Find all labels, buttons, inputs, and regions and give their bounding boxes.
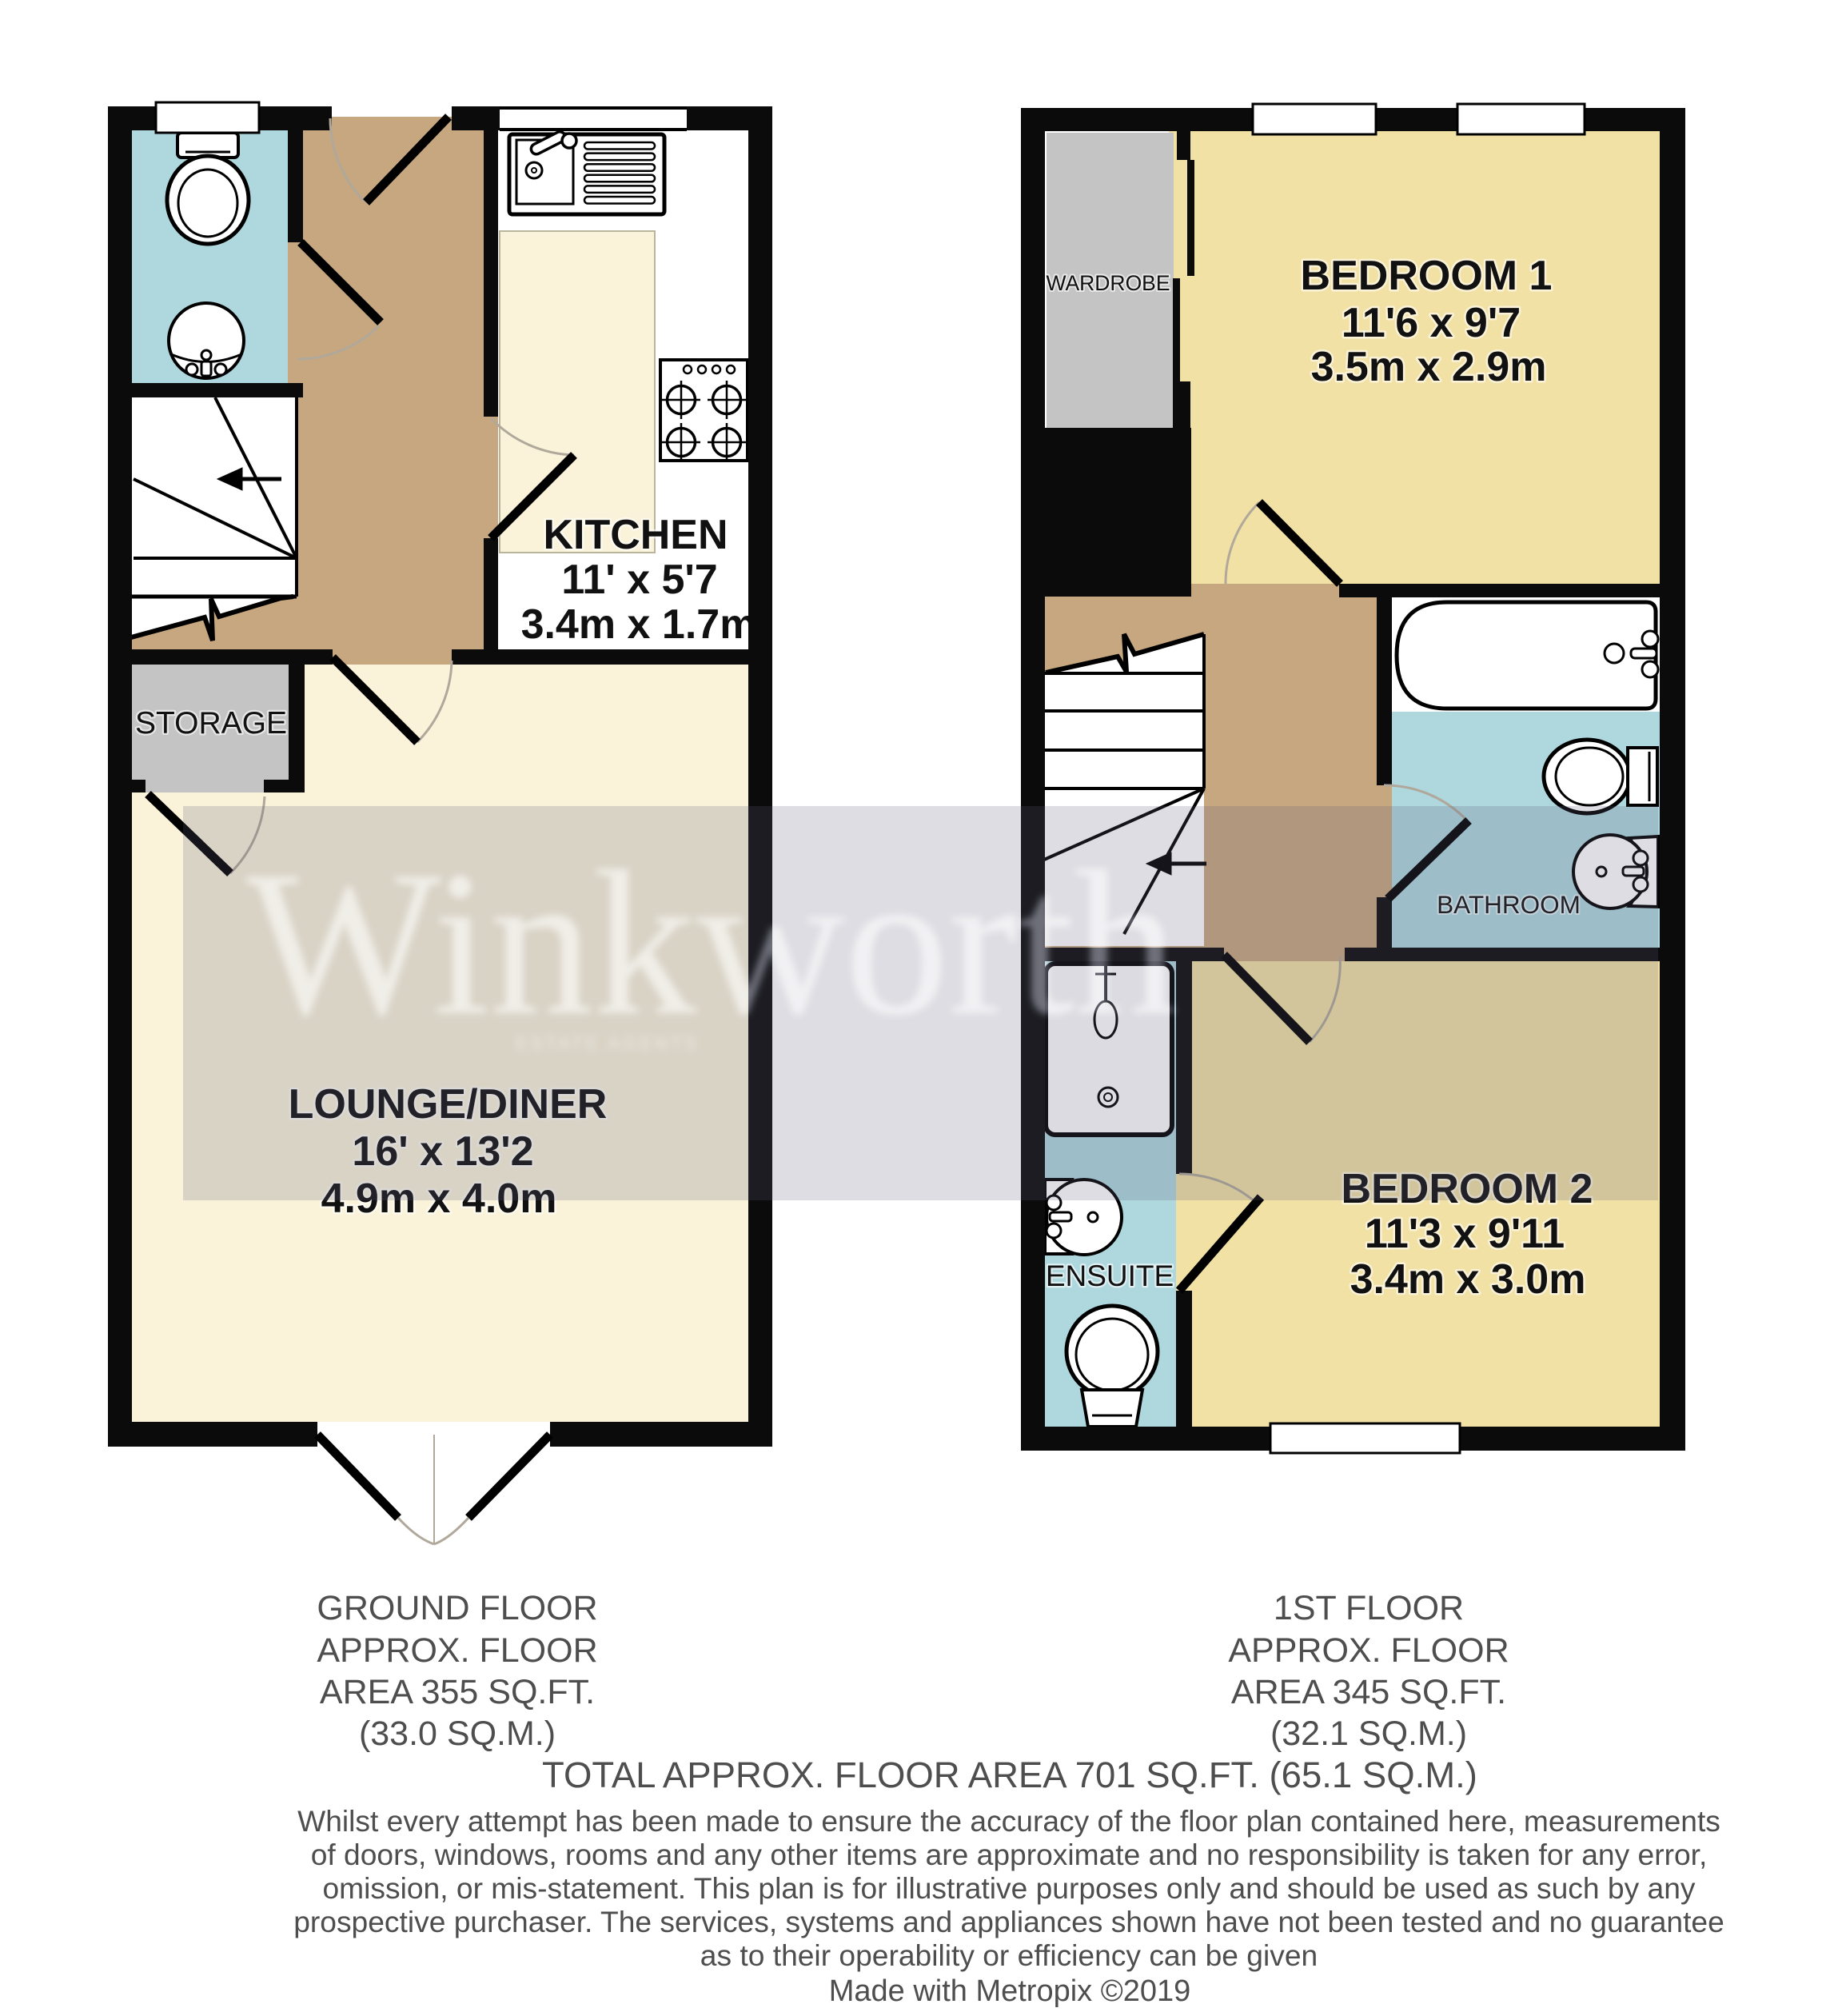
svg-text:AREA 355 SQ.FT.: AREA 355 SQ.FT.: [320, 1673, 595, 1711]
svg-text:STORAGE: STORAGE: [135, 706, 287, 741]
svg-text:KITCHEN: KITCHEN: [543, 512, 728, 558]
svg-text:(33.0 SQ.M.): (33.0 SQ.M.): [359, 1715, 556, 1753]
svg-text:GROUND FLOOR: GROUND FLOOR: [317, 1589, 597, 1627]
svg-text:APPROX. FLOOR: APPROX. FLOOR: [1228, 1631, 1509, 1670]
svg-text:APPROX. FLOOR: APPROX. FLOOR: [317, 1631, 597, 1670]
svg-text:11' x 5'7: 11' x 5'7: [561, 557, 717, 603]
svg-text:11'3 x 9'11: 11'3 x 9'11: [1365, 1211, 1565, 1257]
svg-text:of doors, windows, rooms and a: of doors, windows, rooms and any other i…: [311, 1838, 1708, 1871]
svg-text:3.5m x 2.9m: 3.5m x 2.9m: [1311, 344, 1547, 390]
svg-text:prospective purchaser. The ser: prospective purchaser. The services, sys…: [293, 1905, 1724, 1938]
svg-text:omission, or mis-statement. Th: omission, or mis-statement. This plan is…: [323, 1871, 1696, 1905]
svg-text:AREA 345 SQ.FT.: AREA 345 SQ.FT.: [1231, 1673, 1506, 1711]
svg-text:(32.1 SQ.M.): (32.1 SQ.M.): [1270, 1715, 1467, 1753]
svg-text:11'6 x 9'7: 11'6 x 9'7: [1342, 300, 1521, 346]
svg-text:1ST FLOOR: 1ST FLOOR: [1274, 1589, 1464, 1627]
svg-text:3.4m x 3.0m: 3.4m x 3.0m: [1350, 1256, 1586, 1303]
svg-text:as to their operability or eff: as to their operability or efficiency ca…: [700, 1938, 1318, 1972]
svg-text:Made with Metropix ©2019: Made with Metropix ©2019: [829, 1974, 1191, 2008]
svg-text:3.4m x 1.7m: 3.4m x 1.7m: [521, 601, 757, 648]
svg-text:Winkworth: Winkworth: [246, 828, 1178, 1057]
svg-text:TOTAL APPROX. FLOOR AREA 701 S: TOTAL APPROX. FLOOR AREA 701 SQ.FT. (65.…: [542, 1755, 1477, 1795]
svg-text:ENSUITE: ENSUITE: [1046, 1260, 1174, 1292]
svg-text:Whilst every attempt has been: Whilst every attempt has been made to en…: [297, 1804, 1720, 1838]
svg-text:BEDROOM 1: BEDROOM 1: [1301, 253, 1553, 299]
svg-text:WARDROBE: WARDROBE: [1046, 271, 1170, 295]
